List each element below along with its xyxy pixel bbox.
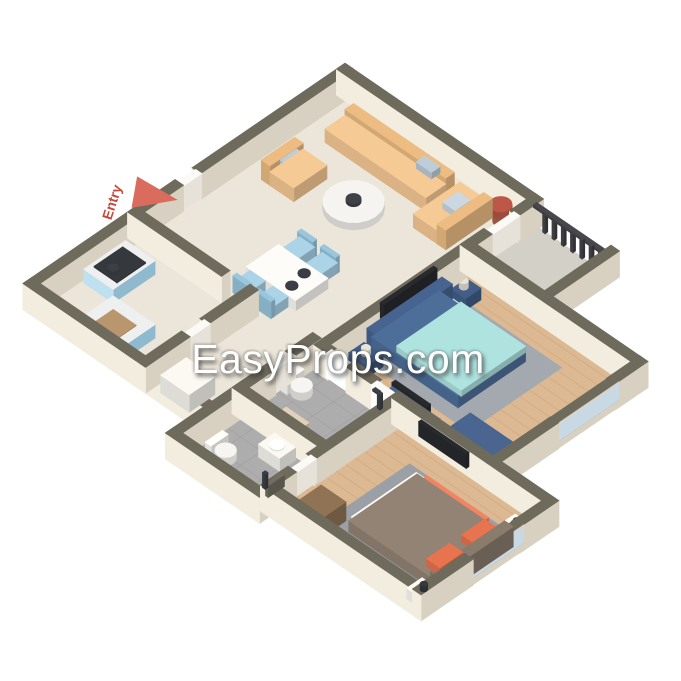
dining-plate [286, 281, 298, 290]
bed1-lamp [361, 344, 370, 357]
bed2-lamp [420, 581, 428, 592]
floorplan-image: EasyProps.com Entry [0, 0, 681, 681]
bathroom-2-shower [263, 471, 268, 490]
coffee-table-decor [346, 194, 361, 207]
dining-plate [298, 269, 310, 278]
kitchen-pot [108, 264, 119, 275]
balcony-railing [580, 237, 585, 259]
bathroom-2-basin [270, 440, 285, 451]
floorplan-canvas [0, 0, 681, 681]
bathroom-1-shower [377, 391, 382, 410]
bathroom-1-toilet-bowl [291, 378, 313, 400]
